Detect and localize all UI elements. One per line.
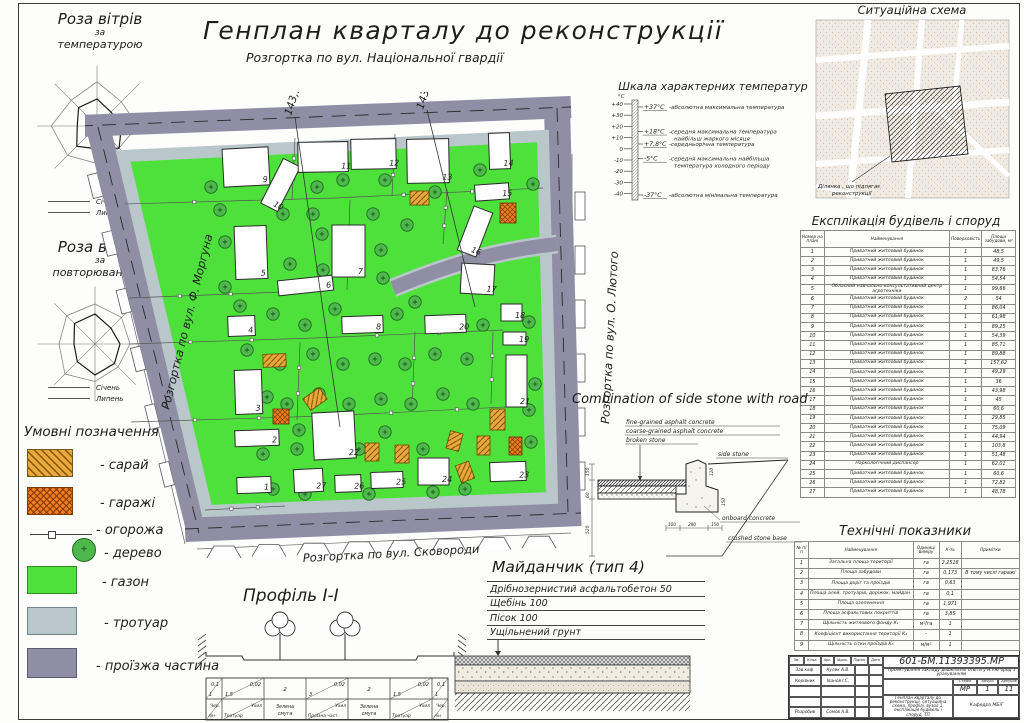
profile-label: Проїзна част. (308, 713, 339, 719)
table-cell: 1 (950, 359, 982, 368)
sheet-value: 1 (977, 685, 998, 695)
tree-icon (375, 393, 387, 405)
temp-entry-value: -37°C (644, 191, 662, 199)
table-cell: 1 (950, 275, 982, 284)
callout-line1: Ділянка , що підлягає (817, 184, 880, 190)
building-footprint: 18 (501, 304, 525, 321)
tree-icon (337, 174, 349, 186)
building-number: 22 (349, 448, 360, 458)
explication-title: Експлікація будівель і споруд (792, 214, 1020, 228)
building-footprint: 22 (312, 411, 360, 460)
sig-name (821, 686, 855, 697)
table-cell: 12 (801, 350, 825, 359)
road (557, 108, 568, 512)
table-row: 25Приватний житловий будинок160,6 (801, 469, 1016, 478)
crushed-base-label: crushed stone base (728, 535, 787, 542)
profile-value: 2 (283, 687, 287, 693)
table-header-row: № п/пНайменуванняОдиниці виміруК-тьПримі… (795, 542, 1020, 559)
asphalt-layer (455, 656, 690, 665)
title-block: Зм.Кільк.Арк.№док.ПідписДатаЗав.каф.Кули… (788, 655, 1019, 719)
building-footprint: 13 (407, 139, 453, 184)
tree-icon (367, 208, 379, 220)
column-header: К-ть (939, 542, 961, 559)
sig-sign (855, 686, 869, 697)
table-cell: 1 (950, 313, 982, 322)
table-cell: Приватний житловий будинок (824, 424, 949, 433)
tree-icon (316, 228, 328, 240)
legend-item-label: - газон (102, 575, 149, 590)
table-cell: Наркологічний диспансер (824, 460, 949, 469)
table-cell: 1 (795, 559, 809, 569)
table-row: 22Приватний житловий будинок1103,8 (801, 442, 1016, 451)
building-number: 24 (442, 475, 452, 484)
table-cell: 1 (950, 424, 982, 433)
shed-footprint (395, 445, 409, 463)
profile-label: Зелена (276, 704, 294, 710)
table-cell: 1 (950, 368, 982, 377)
table-cell: 2 (950, 295, 982, 304)
garage-footprint (509, 437, 522, 455)
table-cell: Приватний житловий будинок (824, 414, 949, 423)
table-cell: Приватний житловий будинок (824, 368, 949, 377)
fence-post-icon (292, 157, 295, 160)
stage-grid: Стадія Аркуш Аркушів МР 1 11 (953, 679, 1020, 695)
building-footprint: 7 (332, 225, 365, 277)
table-row: 5Площа озелененняга1,971 (795, 599, 1020, 609)
table-cell: Приватний житловий будинок (824, 387, 949, 396)
circle-shape (695, 506, 696, 507)
sig-header: Дата (868, 656, 883, 665)
tree-crown (272, 612, 288, 628)
tree-crown (337, 612, 353, 628)
building-footprint: 4 (228, 316, 256, 337)
table-cell: 9 (795, 640, 809, 650)
side-stone-label: side stone (718, 451, 749, 458)
fence-post-icon (193, 418, 196, 421)
building-number: 2 (272, 435, 277, 444)
sig-name: Іванов І.С. (821, 675, 855, 686)
table-row: 11Приватний житловий будинок185,71 (801, 341, 1016, 350)
sig-sign (855, 675, 869, 686)
building-footprint: 21 (506, 355, 530, 407)
sheet-content: Генплан кварталу до реконструкції, ситуа… (883, 695, 953, 718)
building-footprint: 23 (490, 461, 530, 481)
fence-post-icon (391, 173, 394, 176)
fence-post-icon (375, 334, 378, 337)
table-cell: 11 (801, 341, 825, 350)
temp-ruler (632, 100, 638, 200)
table-cell: 2 (795, 569, 809, 579)
sig-role: Зав.каф. (789, 665, 821, 676)
table-cell: 3 (801, 266, 825, 275)
sidewalk-swatch (27, 607, 77, 635)
profile-value: 0,02 (334, 682, 345, 688)
table-cell: Приватний житловий будинок (824, 313, 949, 322)
sig-header-row: Зм.Кільк.Арк.№док.ПідписДата (789, 656, 883, 665)
tree-icon (363, 488, 375, 500)
building-footprint: 19 (503, 332, 529, 345)
fence-post-icon (491, 354, 494, 357)
table-cell: 1 (950, 469, 982, 478)
building-number: 12 (389, 159, 399, 168)
profile-label: смуга (362, 712, 377, 717)
elevation-sketch (575, 246, 585, 274)
table-row: 8Коефіцієнт використання території К₂–1 (795, 630, 1020, 640)
building-footprint: 9 (222, 147, 270, 187)
table-cell: 1 (950, 414, 982, 423)
profile-label: смуга (278, 712, 293, 717)
table-cell: 7 (795, 620, 809, 630)
layer-label: fine-grained asphalt concrete (626, 419, 715, 426)
fence-post-icon (193, 200, 196, 203)
table-cell: 72,82 (982, 479, 1016, 488)
table-cell: 1 (950, 304, 982, 313)
tree-icon (214, 204, 226, 216)
table-cell: 14 (801, 368, 825, 377)
temperature-scale: °C+40+30+20+100-10-20-30-40+37°C-абсолют… (610, 92, 815, 214)
table-cell: Коефіцієнт використання території К₂ (809, 630, 913, 640)
table-cell: Приватний житловий будинок (824, 350, 949, 359)
table-row: 1Приватний житловий будинок148,5 (801, 248, 1016, 257)
building-footprint: 26 (335, 474, 365, 492)
temp-entry-value: +37°C (644, 103, 665, 111)
table-cell: 99,66 (982, 284, 1016, 295)
table-row: 2Приватний житловий будинок149,5 (801, 257, 1016, 266)
tree-icon (293, 424, 305, 436)
table-cell: 1,971 (939, 599, 961, 609)
table-cell (961, 589, 1019, 599)
fence-post-icon (411, 382, 414, 385)
building-footprint: 3 (234, 370, 263, 415)
column-header: Одиниці виміру (913, 542, 939, 559)
table-cell: 1 (939, 640, 961, 650)
tree-icon (474, 164, 486, 176)
table-cell: Щільність житлового фонду К₁ (809, 620, 913, 630)
tree-icon (429, 348, 441, 360)
sig-role (789, 697, 821, 708)
column-header: Номер на плані (801, 231, 825, 248)
tree-icon (391, 308, 403, 320)
table-row: 1Загальна площа територіїга2,2518 (795, 559, 1020, 569)
table-cell: 1 (950, 378, 982, 387)
profile-value: 0,1 (437, 682, 445, 688)
windrose1-sub2: температурою (25, 38, 175, 51)
sig-header: №док. (834, 656, 851, 665)
line-shape (198, 634, 206, 640)
tree-icon (461, 353, 473, 365)
table-cell: 1 (950, 405, 982, 414)
profile-label: лін (433, 713, 441, 719)
legend-item-label: - тротуар (104, 616, 168, 631)
table-cell: 89,25 (982, 322, 1016, 331)
layer-label: coarse-grained asphalt concrete (626, 428, 724, 435)
table-cell (961, 579, 1019, 589)
profile-label: Ухил (419, 703, 430, 709)
table-cell: Приватний житловий будинок (824, 479, 949, 488)
table-cell: 0,63 (939, 579, 961, 589)
reconstruction-parcel (885, 86, 968, 162)
line-shape (198, 640, 206, 646)
table-cell: Приватний житловий будинок (824, 266, 949, 275)
building-number: 4 (248, 326, 253, 335)
building-number: 11 (341, 162, 351, 171)
building-footprint: 25 (371, 471, 407, 488)
leader-arrow-icon (495, 651, 501, 656)
dim-text: 520 (585, 525, 591, 534)
sig-row: КерівникІванов І.С. (789, 675, 883, 686)
table-cell (961, 559, 1019, 569)
profile-label: Зелена (360, 704, 378, 710)
shed-swatch (27, 449, 73, 477)
tree-icon (529, 378, 541, 390)
tree-icon (369, 353, 381, 365)
table-cell: Приватний житловий будинок (824, 304, 949, 313)
tree-icon (329, 303, 341, 315)
fence-post-icon (250, 338, 253, 341)
table-cell: 54,39 (982, 332, 1016, 341)
table-cell: га (913, 599, 939, 609)
table-cell: 45 (982, 396, 1016, 405)
table-row: 10Приватний житловий будинок154,39 (801, 332, 1016, 341)
sig-header: Підпис (851, 656, 868, 665)
table-row: 2Площа забудовига0,173В тому числі гараж… (795, 569, 1020, 579)
table-row: 7Приватний житловий будинок186,04 (801, 304, 1016, 313)
table-cell: 51,48 (982, 451, 1016, 460)
side-stone-detail: fine-grained asphalt concretecoarse-grai… (570, 408, 805, 566)
table-cell: 1 (950, 451, 982, 460)
sig-role: Керівник (789, 675, 821, 686)
table-cell: 1 (950, 460, 982, 469)
sig-date (869, 675, 883, 686)
fence-post-icon (178, 294, 181, 297)
line-shape (198, 652, 206, 658)
table-cell: Приватний житловий будинок (824, 442, 949, 451)
fence-post-icon (471, 190, 474, 193)
building-number: 9 (262, 175, 268, 184)
sig-row (789, 697, 883, 708)
table-cell: 49,5 (982, 257, 1016, 266)
tree-icon (375, 244, 387, 256)
tree-icon (379, 426, 391, 438)
sig-name (821, 697, 855, 708)
sig-date (869, 697, 883, 708)
building-number: 27 (316, 481, 328, 491)
table-cell: 4 (801, 275, 825, 284)
table-cell: 1 (950, 479, 982, 488)
rect-shape (500, 203, 516, 223)
table-cell: 0,1 (939, 589, 961, 599)
fence-post-icon (229, 292, 232, 295)
table-cell: 1 (950, 433, 982, 442)
tree-icon (311, 181, 323, 193)
building-number: 26 (354, 481, 364, 490)
table-cell: 1 (801, 248, 825, 257)
dim-text: 280 (688, 522, 696, 527)
asphalt-coarse-layer (598, 486, 676, 493)
temp-tick-label: +10 (611, 136, 623, 142)
table-row: 6Площа асфальтових покриттівга3,85 (795, 609, 1020, 619)
rect-shape (273, 409, 289, 424)
elevation-sketch (522, 536, 556, 548)
table-cell (961, 630, 1019, 640)
table-cell: 44,94 (982, 433, 1016, 442)
tree-icon (307, 348, 319, 360)
situation-title: Ситуаційна схема (812, 3, 1012, 17)
tree-icon (409, 296, 421, 308)
tree-icon (219, 281, 231, 293)
building-number: 20 (459, 322, 469, 331)
tree-icon (317, 264, 329, 276)
ground-line (206, 652, 454, 660)
side-stone-title: Combination of side stone with road (572, 392, 808, 407)
playground-section (452, 638, 697, 718)
sig-row: Зав.каф.Кулик А.В. (789, 665, 883, 676)
sig-sign (855, 665, 869, 676)
circle-shape (699, 467, 700, 468)
table-cell: м/м² (913, 640, 939, 650)
building-number: 25 (396, 477, 406, 486)
lawn-swatch (27, 566, 77, 594)
table-cell: 1 (950, 257, 982, 266)
table-cell: 5 (795, 599, 809, 609)
line-shape (198, 646, 206, 652)
elevation-sketch (575, 192, 585, 220)
sig-date (869, 665, 883, 676)
building-footprint: 24 (418, 458, 452, 485)
fence-post-icon (443, 224, 446, 227)
table-cell: Площа озеленення (809, 599, 913, 609)
table-cell: Приватний житловий будинок (824, 451, 949, 460)
legend-line-icon (48, 387, 90, 388)
table-cell: 4 (795, 589, 809, 599)
tree-icon (467, 398, 479, 410)
windrose1-title: Роза вітрів (25, 10, 175, 28)
temp-entry-text: -абсолютна мінімальна температура (669, 193, 778, 199)
tree-icon (377, 272, 389, 284)
tree-icon (379, 174, 391, 186)
temp-tick-label: +40 (611, 102, 623, 108)
table-cell: 1 (950, 322, 982, 331)
building-number: 18 (515, 311, 525, 320)
page-subtitle: Розгортка по вул. Національної гвардії (246, 50, 503, 65)
table-cell: 5 (801, 284, 825, 295)
building-footprint: 8 (342, 315, 384, 333)
sig-header: Кільк. (804, 656, 821, 665)
tech-title: Технічні показники (790, 524, 1020, 539)
garage-footprint (500, 203, 516, 223)
windrose-temperature-block: Роза вітрів за температурою (25, 10, 175, 51)
stage-value: МР (953, 685, 977, 695)
table-cell: Загальна площа території (809, 559, 913, 569)
explTable-grid: Номер на планіНайменуванняПоверховістьПл… (800, 230, 1016, 498)
profile-value: 3 (309, 692, 312, 698)
building-footprint: 1 (237, 476, 272, 493)
stage-values: МР 1 11 (953, 685, 1020, 695)
circle-shape (686, 503, 687, 504)
table-cell (961, 640, 1019, 650)
building-number: 3 (255, 404, 260, 413)
profile-drawing: 0,110,021,520,02320,021,50,11Чер.лінУхил… (190, 600, 475, 722)
table-cell (961, 599, 1019, 609)
tree-icon (477, 319, 489, 331)
table-cell: 60,6 (982, 405, 1016, 414)
table-cell: Приватний житловий будинок (824, 295, 949, 304)
sig-row: РозробивСомов А.В. (789, 707, 883, 718)
soil-layer (455, 693, 690, 711)
building-number: 14 (503, 159, 513, 168)
table-cell: Приватний житловий будинок (824, 341, 949, 350)
column-header: Найменування (824, 231, 949, 248)
table-cell: 157,62 (982, 359, 1016, 368)
table-cell: 60,6 (982, 469, 1016, 478)
shed-footprint (490, 409, 505, 430)
building-footprint: 27 (293, 468, 327, 493)
shed-footprint (410, 191, 429, 205)
building-number: 6 (326, 280, 332, 289)
sig-date (869, 707, 883, 718)
rect-shape (395, 445, 409, 463)
table-cell: га (913, 609, 939, 619)
table-cell: В тому числі гаражі (961, 569, 1019, 579)
sig-role: Розробив (789, 707, 821, 718)
legend-line-icon (48, 201, 90, 202)
explication-table: Номер на планіНайменуванняПоверховістьПл… (800, 230, 1016, 498)
situation-map: Ділянка , що підлягаєреконструкції (810, 16, 1015, 206)
table-cell: 2 (801, 257, 825, 266)
tree-icon (429, 186, 441, 198)
doc-number: 601-БМ.11393395.МР (883, 656, 1020, 668)
column-header: № п/п (795, 542, 809, 559)
layer-label: broken stone (626, 437, 666, 444)
temp-tick-label: 0 (620, 147, 624, 153)
building-footprint: 5 (234, 225, 268, 279)
title-block-signatures: Зм.Кільк.Арк.№док.ПідписДатаЗав.каф.Кули… (789, 656, 883, 718)
table-cell: Приватний житловий будинок (824, 332, 949, 341)
table-row: 8Приватний житловий будинок161,98 (801, 313, 1016, 322)
stage-spacer (883, 679, 953, 695)
table-cell: Обласний навчально-консультативний центр… (824, 284, 949, 295)
table-cell: 1 (950, 248, 982, 257)
fence-post-icon (230, 507, 233, 510)
table-cell: га (913, 559, 939, 569)
circle-shape (701, 497, 702, 498)
table-row: 21Приватний житловий будинок144,94 (801, 433, 1016, 442)
fence-post-icon (256, 506, 259, 509)
profile-label: Ухил (335, 703, 346, 709)
tree-icon (219, 236, 231, 248)
master-plan: 1234567891011121314151617181920212223242… (85, 92, 625, 570)
profile-value: 1,5 (393, 692, 401, 698)
profile-label: Тротуар (224, 713, 243, 719)
tree-icon (257, 448, 269, 460)
fence-post-icon (412, 356, 415, 359)
table-row: 13Приватний житловий будинок1157,62 (801, 359, 1016, 368)
shed-footprint (365, 443, 379, 461)
fence-square-icon (48, 531, 56, 539)
dim-text: 150 (585, 467, 591, 476)
table-cell: 3,85 (939, 609, 961, 619)
table-cell: Площа алей, тротуарів, доріжок, майдан. (809, 589, 913, 599)
table-cell: 1 (950, 332, 982, 341)
table-cell: 89,88 (982, 350, 1016, 359)
tree-icon (343, 398, 355, 410)
table-cell: 1 (950, 284, 982, 295)
tree-icon (405, 398, 417, 410)
tech-table: № п/пНайменуванняОдиниці виміруК-тьПримі… (794, 541, 1020, 651)
table-cell: Площа асфальтових покриттів (809, 609, 913, 619)
table-row: 7Щільність житлового фонду К₁м²/га1 (795, 620, 1020, 630)
playground-layer-label: Пісок 100 (487, 611, 705, 626)
